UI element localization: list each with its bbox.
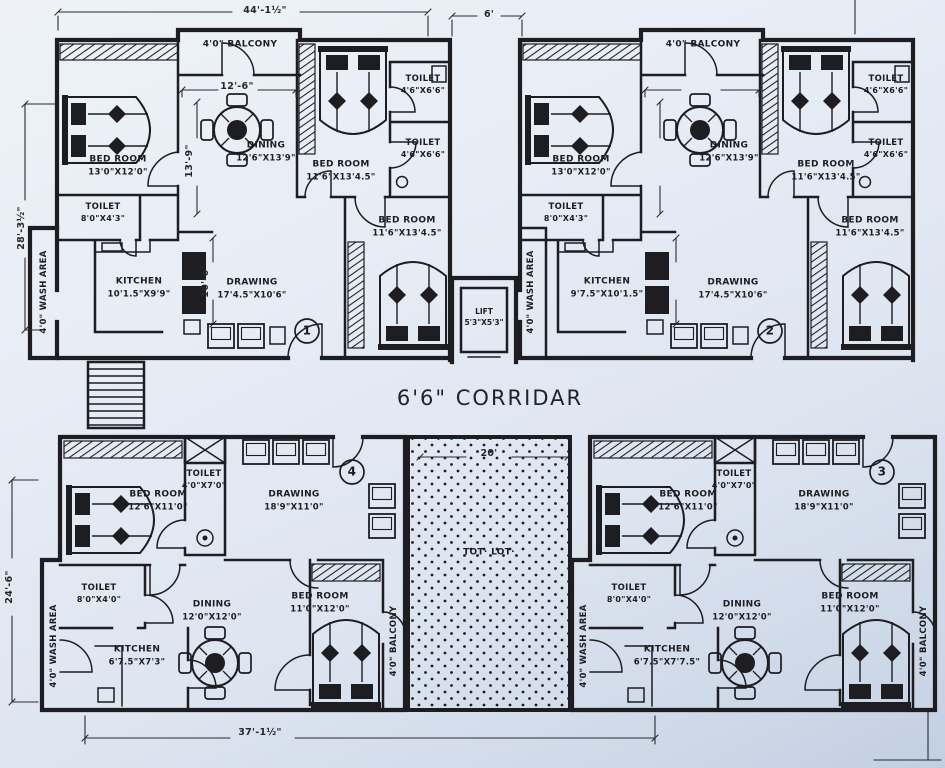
unit1-dining-label: DINING12'6"X13'9" [236, 139, 295, 164]
unit1-bed2-label: BED ROOM11'6"X13'4.5" [306, 158, 375, 183]
dim-drawing-depth: 10'-6" [199, 264, 213, 297]
unit1-drawing-label: DRAWING17'4.5"X10'6" [217, 276, 286, 301]
unit4-dining-label: DINING12'0"X12'0" [182, 598, 241, 623]
unit4-drawing-label: DRAWING18'9"X11'0" [264, 488, 323, 513]
unit3-dining-label: DINING12'0"X12'0" [712, 598, 771, 623]
dim-dining-depth: 13'-9" [183, 144, 197, 177]
unit-2-number: 2 [766, 322, 775, 339]
unit2-toilet-small-label: TOILET8'0"X4'3" [544, 201, 588, 225]
unit4-kitchen-label: KITCHEN6'7.5"X7'3" [109, 643, 166, 668]
unit3-drawing-label: DRAWING18'9"X11'0" [794, 488, 853, 513]
unit3-kitchen-label: KITCHEN6'7.5"X7'7.5" [634, 643, 700, 668]
unit3-bed2-label: BED ROOM11'0"X12'0" [820, 590, 879, 615]
unit-4-number: 4 [348, 463, 357, 480]
unit2-bed3-label: BED ROOM11'6"X13'4.5" [835, 214, 904, 239]
unit2-wash-label: 4'0" WASH AREA [525, 250, 537, 333]
unit1-toilet-top-label: TOILET4'6"X6'6" [401, 73, 445, 97]
unit4-balcony-label: 4'0" BALCONY [388, 606, 400, 677]
unit4-wash-label: 4'0" WASH AREA [48, 604, 60, 687]
unit2-balcony-label: 4'0" BALCONY [666, 38, 741, 51]
unit1-balcony-label: 4'0" BALCONY [203, 38, 278, 51]
unit4-toilet-top-label: TOILET4'0"X7'0" [182, 468, 226, 492]
unit3-wash-label: 4'0" WASH AREA [578, 604, 590, 687]
unit1-wash-label: 4'0" WASH AREA [38, 250, 50, 333]
unit1-bed1-label: BED ROOM13'0"X12'0" [88, 153, 147, 178]
unit2-drawing-label: DRAWING17'4.5"X10'6" [698, 276, 767, 301]
unit3-balcony-label: 4'0" BALCONY [918, 606, 930, 677]
unit4-bed1-label: BED ROOM12'6"X11'0" [128, 488, 187, 513]
dim-bottom-width: 37'-1½" [238, 726, 282, 740]
dim-top-width: 44'-1½" [243, 4, 287, 18]
unit-2-geometry [520, 30, 913, 360]
unit3-toilet-small-label: TOILET8'0"X4'0" [607, 582, 651, 606]
unit1-kitchen-label: KITCHEN10'1.5"X9'9" [108, 275, 171, 300]
dim-top-gap: 6' [484, 8, 494, 22]
dim-dining-width: 12'-6" [220, 80, 253, 94]
unit1-toilet-small-label: TOILET8'0"X4'3" [81, 201, 125, 225]
tot-lot-label: TOT· LOT· [463, 546, 515, 559]
unit4-bed2-label: BED ROOM11'0"X12'0" [290, 590, 349, 615]
unit-1-number: 1 [303, 322, 312, 339]
dim-totlot-width: 20' [480, 447, 497, 461]
unit2-bed2-label: BED ROOM11'6"X13'4.5" [791, 158, 860, 183]
staircase [88, 362, 144, 428]
unit-3-number: 3 [878, 463, 887, 480]
unit2-dining-label: DINING12'6"X13'9" [699, 139, 758, 164]
unit3-toilet-top-label: TOILET4'0"X7'0" [712, 468, 756, 492]
unit2-kitchen-label: KITCHEN9'7.5"X10'1.5" [571, 275, 644, 300]
unit1-bed3-label: BED ROOM11'6"X13'4.5" [372, 214, 441, 239]
lift-label: LIFT5'3"X5'3" [464, 307, 503, 329]
unit4-toilet-small-label: TOILET8'0"X4'0" [77, 582, 121, 606]
unit2-toilet-mid-label: TOILET4'6"X6'6" [864, 137, 908, 161]
unit2-bed1-label: BED ROOM13'0"X12'0" [551, 153, 610, 178]
floor-plan-page: 44'-1½" 6' 28'-3½" 24'-6" 37'-1½" 20' 12… [0, 0, 945, 768]
unit2-toilet-top-label: TOILET4'6"X6'6" [864, 73, 908, 97]
unit3-bed1-label: BED ROOM12'6"X11'0" [658, 488, 717, 513]
tot-lot-area [408, 437, 570, 710]
unit1-toilet-mid-label: TOILET4'6"X6'6" [401, 137, 445, 161]
corridor-label: 6'6" CORRIDAR [397, 383, 583, 413]
dim-left-upper: 28'-3½" [15, 206, 29, 250]
dim-left-lower: 24'-6" [3, 570, 17, 603]
